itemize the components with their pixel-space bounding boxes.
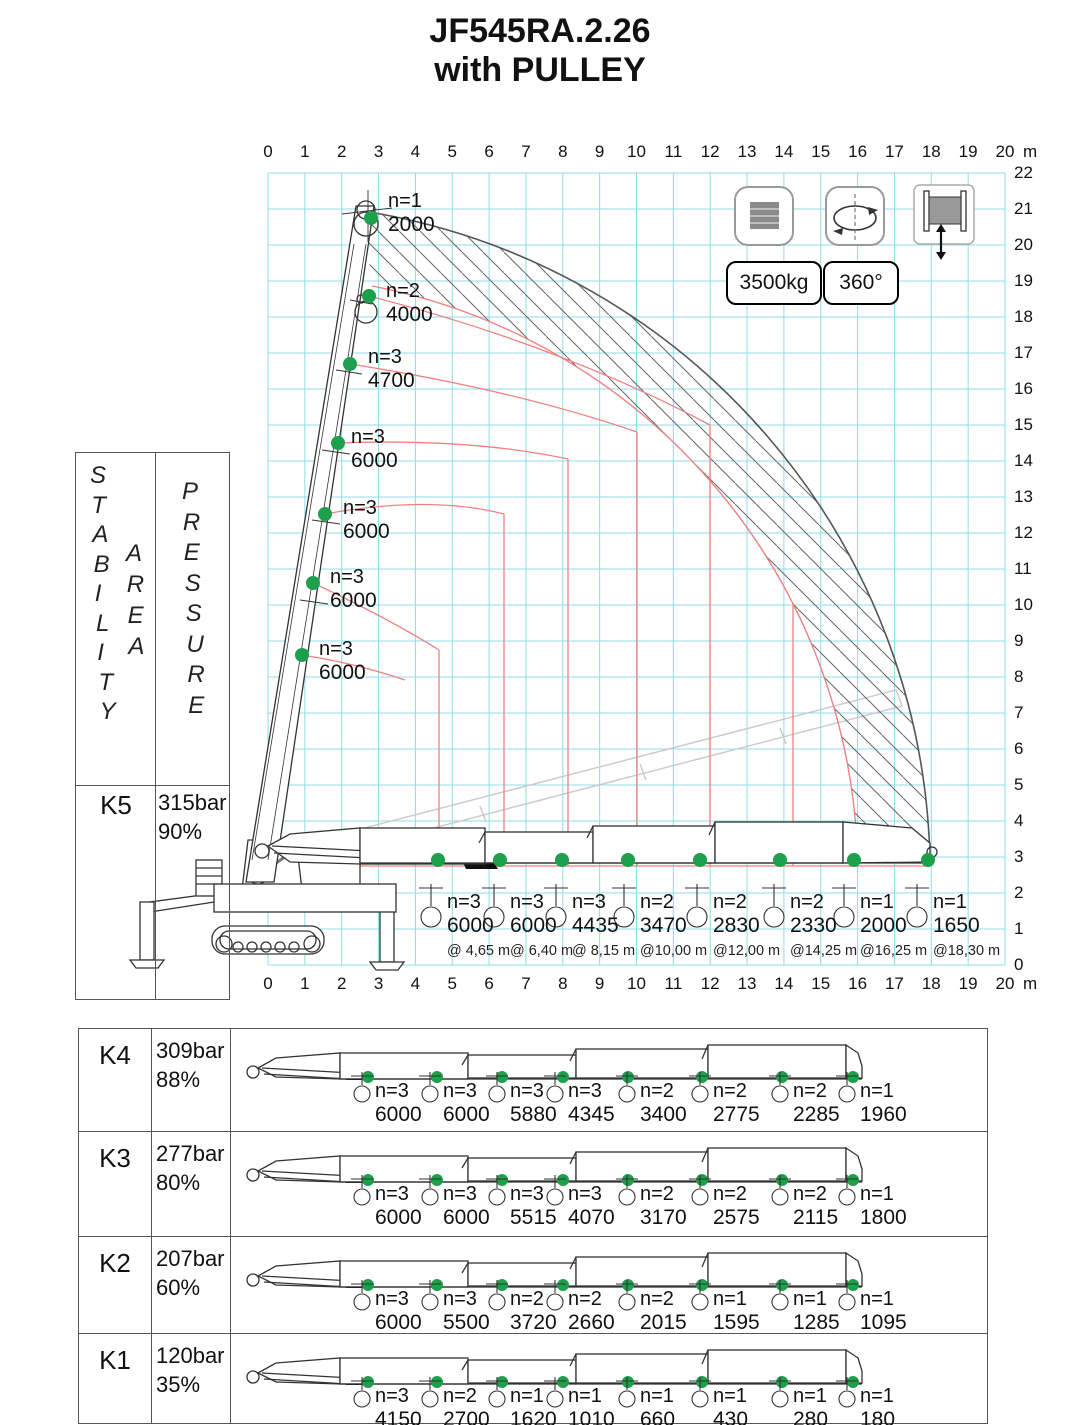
y-tick: 1 <box>1014 919 1023 939</box>
rotation-360-icon <box>826 187 884 245</box>
falls-count: n=1 <box>713 1385 748 1408</box>
falls-count: n=3 <box>375 1288 422 1311</box>
load-value: 1285 <box>793 1311 840 1334</box>
falls-count: n=3 <box>510 1183 557 1206</box>
falls-count: n=1 <box>933 891 1000 914</box>
row-load-label: n=11800 <box>860 1183 907 1229</box>
x-tick: 8 <box>558 142 567 162</box>
row-pressure: 207bar60% <box>156 1244 225 1302</box>
falls-count: n=3 <box>572 891 635 914</box>
winch-pulley-icon <box>914 185 974 260</box>
row-pressure-k5: 315bar 90% <box>158 788 227 846</box>
load-value: 3720 <box>510 1311 557 1334</box>
falls-count: n=2 <box>793 1080 840 1103</box>
falls-count: n=3 <box>368 346 415 369</box>
load-value: 2830 <box>713 914 780 937</box>
k5-load-label: n=11650@18,30 m <box>933 891 1000 963</box>
falls-count: n=3 <box>568 1183 615 1206</box>
load-radius: @14,25 m <box>790 940 857 963</box>
x-tick: 15 <box>811 142 830 162</box>
x-axis-unit: m <box>1023 142 1037 162</box>
x-tick: 14 <box>774 142 793 162</box>
row-load-label: n=35880 <box>510 1080 557 1126</box>
y-tick: 7 <box>1014 703 1023 723</box>
x-tick: 5 <box>448 974 457 994</box>
load-value: 6000 <box>443 1103 490 1126</box>
col-divider <box>230 1028 231 1424</box>
load-radius: @16,25 m <box>860 940 927 963</box>
load-value: 180 <box>860 1408 895 1425</box>
load-value: 6000 <box>319 661 366 684</box>
stability-letter: I <box>95 580 102 608</box>
row-load-label: n=22015 <box>640 1288 687 1334</box>
load-value: 5880 <box>510 1103 557 1126</box>
y-tick: 22 <box>1014 163 1033 183</box>
capacity-badge: 3500kg <box>726 261 822 305</box>
load-value: 4345 <box>568 1103 615 1126</box>
load-value: 4000 <box>386 303 433 326</box>
k5-load-label: n=36000@ 4,65 m <box>447 891 510 963</box>
x-tick: 18 <box>922 142 941 162</box>
vertical-boom-load: n=12000 <box>388 190 435 236</box>
falls-count: n=2 <box>713 891 780 914</box>
falls-count: n=3 <box>447 891 510 914</box>
falls-count: n=1 <box>713 1288 760 1311</box>
x-tick: 4 <box>411 974 420 994</box>
pressure-letter: E <box>184 539 200 567</box>
vertical-boom-load: n=24000 <box>386 280 433 326</box>
load-value: 1800 <box>860 1206 907 1229</box>
row-load-label: n=36000 <box>375 1288 422 1334</box>
falls-count: n=2 <box>640 1288 687 1311</box>
stability-percent: 90% <box>158 817 227 846</box>
page-title: JF545RA.2.26 with PULLEY <box>0 12 1080 90</box>
x-tick: 3 <box>374 142 383 162</box>
x-tick: 4 <box>411 142 420 162</box>
load-value: 1595 <box>713 1311 760 1334</box>
load-value: 6000 <box>375 1103 422 1126</box>
row-load-label: n=23400 <box>640 1080 687 1126</box>
load-value: 280 <box>793 1408 828 1425</box>
load-value: 4070 <box>568 1206 615 1229</box>
area-letter: A <box>128 633 144 661</box>
stability-percent: 80% <box>156 1168 225 1197</box>
load-value: 2000 <box>860 914 927 937</box>
y-tick: 9 <box>1014 631 1023 651</box>
load-value: 2700 <box>443 1408 490 1425</box>
pressure-letter: U <box>187 631 204 659</box>
falls-count: n=3 <box>330 566 377 589</box>
stability-letter: L <box>96 610 109 638</box>
load-value: 1010 <box>568 1408 615 1425</box>
falls-count: n=1 <box>388 190 435 213</box>
y-tick: 5 <box>1014 775 1023 795</box>
row-load-label: n=11095 <box>860 1288 907 1334</box>
x-tick: 9 <box>595 974 604 994</box>
horizontal-boom-drawing <box>255 822 937 869</box>
falls-count: n=1 <box>860 1385 895 1408</box>
x-tick: 6 <box>484 142 493 162</box>
falls-count: n=3 <box>319 638 366 661</box>
col-divider <box>151 1028 152 1424</box>
load-value: 2015 <box>640 1311 687 1334</box>
vertical-boom-load: n=36000 <box>351 426 398 472</box>
falls-count: n=2 <box>793 1183 838 1206</box>
x-tick: 2 <box>337 142 346 162</box>
x-tick: 5 <box>448 142 457 162</box>
y-tick: 21 <box>1014 199 1033 219</box>
falls-count: n=1 <box>860 1183 907 1206</box>
load-value: 6000 <box>375 1206 422 1229</box>
y-tick: 2 <box>1014 883 1023 903</box>
falls-count: n=3 <box>568 1080 615 1103</box>
title-line2: with PULLEY <box>0 51 1080 90</box>
y-tick: 15 <box>1014 415 1033 435</box>
y-tick: 11 <box>1014 559 1032 579</box>
x-tick: 13 <box>738 974 757 994</box>
y-tick: 19 <box>1014 271 1033 291</box>
stability-letter: B <box>94 551 110 579</box>
table-divider <box>155 452 156 1000</box>
falls-count: n=1 <box>510 1385 557 1408</box>
x-tick: 11 <box>665 142 683 162</box>
pressure-letter: S <box>185 570 201 598</box>
falls-count: n=3 <box>510 1080 557 1103</box>
x-tick: 19 <box>959 974 978 994</box>
vertical-boom-load: n=36000 <box>330 566 377 612</box>
row-divider <box>78 1236 988 1237</box>
x-tick: 20 <box>996 142 1015 162</box>
y-tick: 10 <box>1014 595 1033 615</box>
x-tick: 16 <box>848 974 867 994</box>
load-value: 4150 <box>375 1408 422 1425</box>
load-radius: @10,00 m <box>640 940 707 963</box>
load-value: 3470 <box>640 914 707 937</box>
load-radius: @ 4,65 m <box>447 940 510 963</box>
falls-count: n=2 <box>510 1288 557 1311</box>
x-tick: 0 <box>263 142 272 162</box>
stability-percent: 88% <box>156 1065 225 1094</box>
falls-count: n=3 <box>375 1183 422 1206</box>
falls-count: n=2 <box>713 1080 760 1103</box>
load-value: 1650 <box>933 914 1000 937</box>
row-key-k4: K4 <box>80 1040 150 1071</box>
load-value: 1620 <box>510 1408 557 1425</box>
x-tick: 7 <box>521 974 530 994</box>
vertical-boom-load: n=36000 <box>319 638 366 684</box>
x-tick: 16 <box>848 142 867 162</box>
k5-load-label: n=23470@10,00 m <box>640 891 707 963</box>
k5-load-label: n=22330@14,25 m <box>790 891 857 963</box>
x-tick: 10 <box>627 974 646 994</box>
row-load-label: n=1280 <box>793 1385 828 1425</box>
load-value: 6000 <box>443 1206 490 1229</box>
load-value: 6000 <box>330 589 377 612</box>
y-tick: 18 <box>1014 307 1033 327</box>
load-radius: @12,00 m <box>713 940 780 963</box>
area-letter: R <box>127 571 144 599</box>
vertical-boom-load: n=34700 <box>368 346 415 392</box>
y-tick: 13 <box>1014 487 1033 507</box>
falls-count: n=3 <box>443 1288 490 1311</box>
pressure-value: 277bar <box>156 1139 225 1168</box>
pressure-value: 315bar <box>158 788 227 817</box>
load-value: 2775 <box>713 1103 760 1126</box>
load-value: 1960 <box>860 1103 907 1126</box>
y-tick: 6 <box>1014 739 1023 759</box>
load-value: 5515 <box>510 1206 557 1229</box>
row-divider <box>78 1131 988 1132</box>
x-tick: 14 <box>774 974 793 994</box>
row-load-label: n=1660 <box>640 1385 675 1425</box>
falls-count: n=1 <box>568 1385 615 1408</box>
stability-letter: I <box>97 639 104 667</box>
x-tick: 17 <box>885 974 904 994</box>
falls-count: n=2 <box>640 1080 687 1103</box>
x-tick: 0 <box>263 974 272 994</box>
x-tick: 1 <box>300 974 309 994</box>
area-letter: A <box>126 540 142 568</box>
falls-count: n=3 <box>510 891 573 914</box>
stability-letter: T <box>98 669 113 697</box>
x-tick: 20 <box>996 974 1015 994</box>
load-radius: @18,30 m <box>933 940 1000 963</box>
y-tick: 12 <box>1014 523 1033 543</box>
load-radius: @ 8,15 m <box>572 940 635 963</box>
pressure-value: 207bar <box>156 1244 225 1273</box>
title-line1: JF545RA.2.26 <box>0 12 1080 51</box>
falls-count: n=2 <box>640 1183 687 1206</box>
load-value: 6000 <box>447 914 510 937</box>
x-tick: 13 <box>738 142 757 162</box>
row-load-label: n=22115 <box>793 1183 838 1229</box>
k5-load-label: n=36000@ 6,40 m <box>510 891 573 963</box>
falls-count: n=3 <box>375 1385 422 1408</box>
row-load-label: n=1180 <box>860 1385 895 1425</box>
falls-count: n=1 <box>860 891 927 914</box>
falls-count: n=3 <box>375 1080 422 1103</box>
stability-percent: 35% <box>156 1370 225 1399</box>
falls-count: n=1 <box>793 1288 840 1311</box>
pressure-value: 309bar <box>156 1036 225 1065</box>
falls-count: n=1 <box>860 1288 907 1311</box>
stability-letter: A <box>92 521 108 549</box>
falls-count: n=3 <box>343 497 390 520</box>
load-value: 2575 <box>713 1206 760 1229</box>
vertical-boom-load: n=36000 <box>343 497 390 543</box>
load-envelope <box>363 211 930 861</box>
table-divider <box>75 785 230 786</box>
row-load-label: n=34150 <box>375 1385 422 1425</box>
x-tick: 2 <box>337 974 346 994</box>
rotation-badge: 360° <box>823 261 899 305</box>
load-value: 2115 <box>793 1206 838 1229</box>
falls-count: n=2 <box>790 891 857 914</box>
row-load-label: n=11620 <box>510 1385 557 1425</box>
load-radius: @ 6,40 m <box>510 940 573 963</box>
load-value: 4700 <box>368 369 415 392</box>
k5-load-label: n=34435@ 8,15 m <box>572 891 635 963</box>
pressure-letter: R <box>183 509 200 537</box>
falls-count: n=2 <box>443 1385 490 1408</box>
load-value: 2285 <box>793 1103 840 1126</box>
y-tick: 0 <box>1014 955 1023 975</box>
load-value: 5500 <box>443 1311 490 1334</box>
stability-percent: 60% <box>156 1273 225 1302</box>
falls-count: n=2 <box>640 891 707 914</box>
row-load-label: n=1430 <box>713 1385 748 1425</box>
falls-count: n=2 <box>386 280 433 303</box>
load-value: 660 <box>640 1408 675 1425</box>
pressure-letter: R <box>187 661 204 689</box>
load-value: 3400 <box>640 1103 687 1126</box>
falls-count: n=1 <box>793 1385 828 1408</box>
y-tick: 8 <box>1014 667 1023 687</box>
x-tick: 12 <box>701 974 720 994</box>
row-load-label: n=22285 <box>793 1080 840 1126</box>
x-tick: 8 <box>558 974 567 994</box>
pressure-letter: S <box>186 600 202 628</box>
pressure-value: 120bar <box>156 1341 225 1370</box>
k5-load-label: n=12000@16,25 m <box>860 891 927 963</box>
load-value: 2660 <box>568 1311 615 1334</box>
stability-letter: T <box>91 492 106 520</box>
row-key-k1: K1 <box>80 1345 150 1376</box>
load-value: 2000 <box>388 213 435 236</box>
load-value: 2330 <box>790 914 857 937</box>
falls-count: n=3 <box>443 1080 490 1103</box>
load-value: 430 <box>713 1408 748 1425</box>
load-value: 6000 <box>510 914 573 937</box>
y-tick: 3 <box>1014 847 1023 867</box>
row-load-label: n=11595 <box>713 1288 760 1334</box>
x-tick: 11 <box>665 974 683 994</box>
x-tick: 19 <box>959 142 978 162</box>
falls-count: n=1 <box>860 1080 907 1103</box>
x-tick: 1 <box>300 142 309 162</box>
row-load-label: n=36000 <box>443 1183 490 1229</box>
stability-letter: S <box>90 462 106 490</box>
row-load-label: n=34345 <box>568 1080 615 1126</box>
load-value: 1095 <box>860 1311 907 1334</box>
x-tick: 18 <box>922 974 941 994</box>
x-tick: 3 <box>374 974 383 994</box>
falls-count: n=2 <box>713 1183 760 1206</box>
y-tick: 17 <box>1014 343 1033 363</box>
row-load-label: n=36000 <box>375 1080 422 1126</box>
falls-count: n=3 <box>351 426 398 449</box>
falls-count: n=1 <box>640 1385 675 1408</box>
row-key-k2: K2 <box>80 1248 150 1279</box>
row-load-label: n=36000 <box>375 1183 422 1229</box>
y-tick: 14 <box>1014 451 1033 471</box>
row-load-label: n=23720 <box>510 1288 557 1334</box>
x-tick: 10 <box>627 142 646 162</box>
pressure-letter: P <box>182 478 198 506</box>
row-load-label: n=35515 <box>510 1183 557 1229</box>
row-load-label: n=22775 <box>713 1080 760 1126</box>
k5-load-label: n=22830@12,00 m <box>713 891 780 963</box>
crane-load-chart-page: JF545RA.2.26 with PULLEY 3500kg 360° 012… <box>0 0 1080 1425</box>
load-value: 6000 <box>375 1311 422 1334</box>
x-tick: 7 <box>521 142 530 162</box>
x-tick: 12 <box>701 142 720 162</box>
x-tick: 6 <box>484 974 493 994</box>
y-tick: 4 <box>1014 811 1023 831</box>
x-tick: 9 <box>595 142 604 162</box>
row-load-label: n=36000 <box>443 1080 490 1126</box>
falls-count: n=2 <box>568 1288 615 1311</box>
row-pressure: 277bar80% <box>156 1139 225 1197</box>
row-pressure: 309bar88% <box>156 1036 225 1094</box>
row-pressure: 120bar35% <box>156 1341 225 1399</box>
row-load-label: n=22700 <box>443 1385 490 1425</box>
x-tick: 15 <box>811 974 830 994</box>
row-load-label: n=35500 <box>443 1288 490 1334</box>
row-key-k3: K3 <box>80 1143 150 1174</box>
row-load-label: n=11960 <box>860 1080 907 1126</box>
x-axis-unit: m <box>1023 974 1037 994</box>
row-load-label: n=22575 <box>713 1183 760 1229</box>
row-load-label: n=22660 <box>568 1288 615 1334</box>
row-load-label: n=34070 <box>568 1183 615 1229</box>
pressure-letter: E <box>188 692 204 720</box>
row-load-label: n=11010 <box>568 1385 615 1425</box>
row-load-label: n=23170 <box>640 1183 687 1229</box>
row-load-label: n=11285 <box>793 1288 840 1334</box>
stability-letter: Y <box>100 698 116 726</box>
y-tick: 16 <box>1014 379 1033 399</box>
falls-count: n=3 <box>443 1183 490 1206</box>
area-letter: E <box>128 602 144 630</box>
load-value: 6000 <box>343 520 390 543</box>
load-value: 4435 <box>572 914 635 937</box>
load-value: 3170 <box>640 1206 687 1229</box>
row-key-k5: K5 <box>86 790 146 821</box>
load-value: 6000 <box>351 449 398 472</box>
y-tick: 20 <box>1014 235 1033 255</box>
x-tick: 17 <box>885 142 904 162</box>
counterweight-icon <box>735 187 793 245</box>
